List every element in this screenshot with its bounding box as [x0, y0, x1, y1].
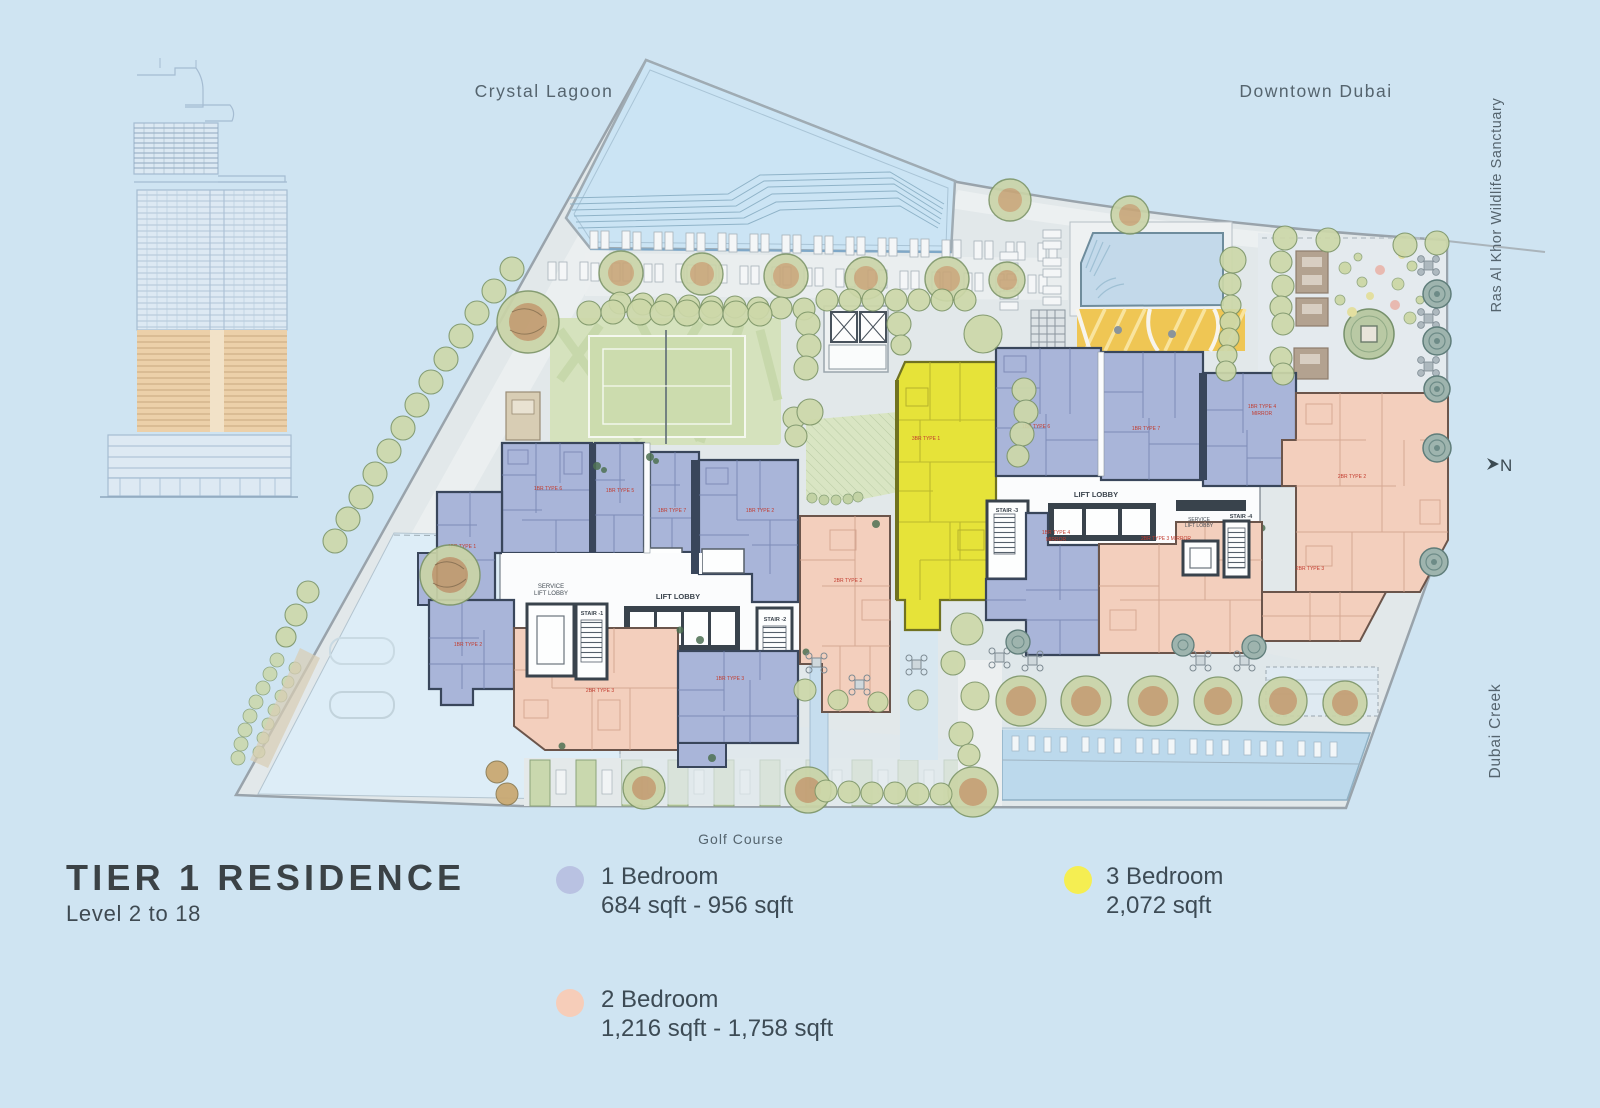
svg-text:Dubai Creek: Dubai Creek [1487, 684, 1504, 779]
svg-text:1BR TYPE 7: 1BR TYPE 7 [1132, 426, 1160, 432]
svg-text:1BR TYPE 4: 1BR TYPE 4 [1248, 404, 1276, 410]
svg-text:SERVICE: SERVICE [538, 584, 564, 590]
svg-text:N: N [1500, 456, 1512, 475]
svg-text:684 sqft - 956 sqft: 684 sqft - 956 sqft [601, 892, 793, 919]
svg-text:LIFT LOBBY: LIFT LOBBY [534, 591, 568, 597]
svg-text:STAIR -1: STAIR -1 [581, 611, 604, 617]
svg-text:2BR TYPE 3: 2BR TYPE 3 [586, 688, 614, 694]
svg-text:2 Bedroom: 2 Bedroom [601, 986, 718, 1013]
svg-text:Golf Course: Golf Course [698, 831, 784, 847]
svg-text:STAIR -2: STAIR -2 [764, 617, 787, 623]
svg-text:STAIR -4: STAIR -4 [1230, 514, 1253, 520]
svg-text:STAIR -3: STAIR -3 [996, 508, 1019, 514]
svg-text:1BR TYPE 3: 1BR TYPE 3 [716, 676, 744, 682]
svg-text:3 Bedroom: 3 Bedroom [1106, 863, 1223, 890]
svg-text:LIFT LOBBY: LIFT LOBBY [1185, 523, 1214, 529]
svg-text:LIFT LOBBY: LIFT LOBBY [656, 592, 700, 601]
svg-text:MIRROR: MIRROR [1046, 537, 1067, 543]
svg-text:2BR TYPE 3: 2BR TYPE 3 [1296, 566, 1324, 572]
svg-text:2BR TYPE 2: 2BR TYPE 2 [1338, 474, 1366, 480]
svg-text:3BR TYPE 1: 3BR TYPE 1 [912, 436, 940, 442]
svg-text:1BR TYPE 2: 1BR TYPE 2 [454, 642, 482, 648]
svg-text:Downtown Dubai: Downtown Dubai [1239, 81, 1392, 101]
svg-text:Crystal Lagoon: Crystal Lagoon [475, 81, 614, 101]
svg-text:1BR TYPE 4: 1BR TYPE 4 [1042, 530, 1070, 536]
svg-text:1BR TYPE 7: 1BR TYPE 7 [658, 508, 686, 514]
svg-text:Ras Al Khor Wildlife Sanctuary: Ras Al Khor Wildlife Sanctuary [1489, 98, 1505, 313]
svg-text:2BR TYPE 3 MIRROR: 2BR TYPE 3 MIRROR [1141, 536, 1191, 542]
svg-text:MIRROR: MIRROR [1252, 411, 1273, 417]
svg-text:1BR TYPE 5: 1BR TYPE 5 [606, 488, 634, 494]
svg-text:LIFT LOBBY: LIFT LOBBY [1074, 490, 1118, 499]
svg-text:1 Bedroom: 1 Bedroom [601, 863, 718, 890]
svg-text:1BR TYPE 6: 1BR TYPE 6 [534, 486, 562, 492]
svg-text:Level 2 to 18: Level 2 to 18 [66, 901, 201, 926]
svg-text:2BR TYPE 2: 2BR TYPE 2 [834, 578, 862, 584]
svg-text:TIER 1 RESIDENCE: TIER 1 RESIDENCE [66, 857, 465, 898]
svg-text:1,216 sqft - 1,758 sqft: 1,216 sqft - 1,758 sqft [601, 1015, 833, 1042]
svg-text:2,072 sqft: 2,072 sqft [1106, 892, 1212, 919]
svg-text:1BR TYPE 2: 1BR TYPE 2 [746, 508, 774, 514]
